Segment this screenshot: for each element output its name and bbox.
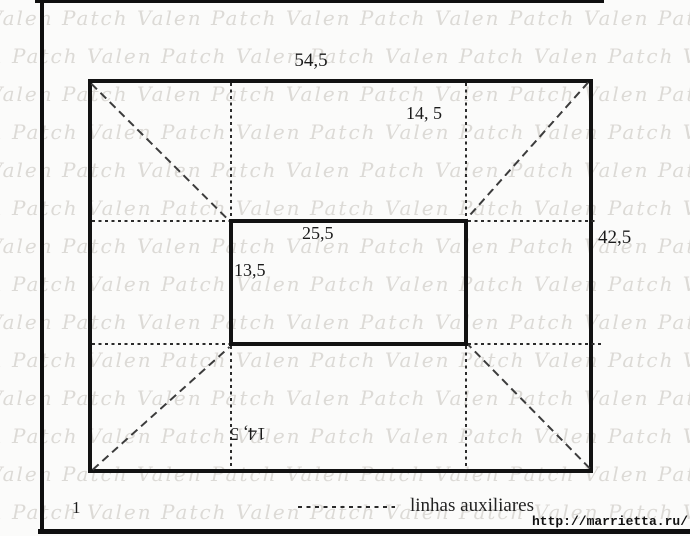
aux-line-horizontal-left-top [92, 220, 229, 222]
legend-label: linhas auxiliares [410, 495, 534, 517]
aux-line-vertical-top-right [465, 83, 467, 219]
aux-line-vertical-bottom-right [465, 346, 467, 470]
aux-line-horizontal-left-bottom [92, 343, 229, 345]
inner-rectangle [229, 219, 468, 346]
scan-frame-left [40, 0, 44, 534]
aux-line-vertical-top-left [230, 83, 232, 219]
top-margin-label: 14, 5 [406, 103, 442, 124]
scan-frame-top [35, 0, 604, 3]
aux-line-horizontal-right-bottom [468, 343, 601, 345]
aux-line-horizontal-right-top [468, 220, 596, 222]
figure-number: 1 [72, 498, 81, 518]
watermark-text: Valen Patch Valen Patch Valen Patch Vale… [0, 44, 690, 68]
inner-height-label: 13,5 [234, 260, 266, 281]
source-url: http://marrietta.ru/ [532, 514, 688, 529]
outer-width-label: 54,5 [283, 50, 339, 72]
outer-height-label: 42,5 [598, 227, 631, 249]
legend-dash-sample [298, 506, 395, 508]
scan-frame-bottom [38, 529, 690, 534]
pattern-diagram: Valen Patch Valen Patch Valen Patch Vale… [0, 0, 690, 536]
bottom-margin-label-rotated: 14, 5 [230, 423, 266, 444]
aux-line-vertical-bottom-left [230, 346, 232, 470]
inner-width-label: 25,5 [302, 223, 334, 244]
watermark-text: Valen Patch Valen Patch Valen Patch Vale… [0, 6, 690, 30]
